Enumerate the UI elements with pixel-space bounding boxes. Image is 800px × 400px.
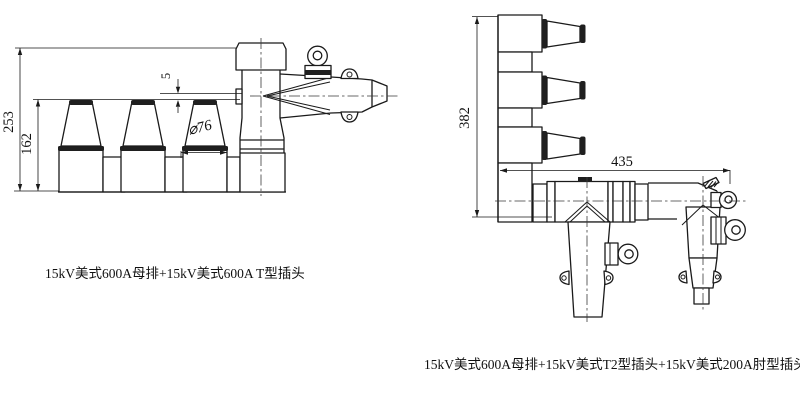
bushing-cone [547, 133, 580, 159]
bushing-flange [182, 146, 228, 151]
left-bushing-2 [120, 100, 166, 151]
tall-block-1 [59, 150, 103, 192]
tall-block-2 [121, 150, 165, 192]
dim-253-label: 253 [1, 111, 17, 133]
dim-162-label: 162 [19, 133, 35, 155]
right-bushing-2 [542, 76, 586, 106]
elbow-plug [679, 176, 745, 310]
bushing-cone [61, 104, 101, 146]
bushing-flange [542, 131, 547, 160]
bushing-cap [580, 25, 586, 44]
left-drawing: 253 162 5 ⌀76 15kV美式600A母排+15kV美式600A T型… [1, 38, 399, 281]
tall-block-3 [183, 150, 227, 192]
wide-block-3 [498, 127, 542, 163]
body-band [635, 184, 648, 220]
right-caption: 15kV美式600A母排+15kV美式T2型插头+15kV美式200A肘型插头 [424, 357, 800, 372]
elbow-stem [694, 288, 709, 304]
eye-base [711, 217, 726, 244]
body-band [613, 182, 623, 223]
t2-top-nub [578, 177, 592, 182]
elbow-eye-bolt-top [711, 192, 737, 209]
arrow-up [36, 100, 40, 107]
dim-435-label: 435 [611, 154, 633, 170]
short-block-3 [227, 157, 240, 192]
arrow-down [18, 184, 22, 191]
plug-body [568, 222, 610, 317]
eye-base [605, 243, 618, 265]
bushing-cap [580, 137, 586, 156]
lifting-eye-bolt [605, 243, 638, 265]
arrow-up [475, 17, 479, 24]
arrow-down [475, 210, 479, 217]
body-band [630, 182, 635, 223]
eye-hole [725, 196, 732, 203]
plug-ear-right [604, 271, 613, 285]
elbow-hatched-tab [703, 178, 719, 189]
arrow-up [18, 48, 22, 55]
t-plug-side-nub [236, 89, 242, 104]
bushing-cap [131, 100, 155, 105]
right-drawing: 382 435 15kV美式600A母排+15kV美式T2型插头+15kV美式2… [424, 15, 800, 372]
lifting-eye-bolt [305, 46, 331, 78]
arrow-down [176, 87, 180, 94]
bushing-cap [193, 100, 217, 105]
arm-ear-bottom [341, 112, 358, 122]
eye-hole [625, 250, 633, 258]
bushing-cap [580, 81, 586, 100]
right-bushing-3 [542, 131, 586, 160]
bushing-flange [542, 76, 547, 106]
elbow-ear-left [679, 271, 687, 283]
bushing-cone [547, 78, 580, 104]
bushing-cap [69, 100, 93, 105]
body-band [608, 182, 613, 223]
arrow-right [723, 168, 730, 172]
elbow-eye-bolt-side [711, 217, 745, 244]
bushing-cone [547, 21, 580, 47]
bushing-flange [542, 19, 547, 49]
body-band [623, 182, 630, 223]
left-bushing-1 [58, 100, 104, 151]
narrow-block-1 [498, 52, 532, 72]
bushing-cone [123, 104, 163, 146]
t-plug-base [240, 153, 285, 192]
dim-5-label: 5 [159, 73, 173, 79]
right-bushing-1 [542, 19, 586, 49]
connector-segment [547, 182, 555, 223]
arrow-up [176, 100, 180, 107]
connector-segment [533, 184, 547, 222]
arrow-down [36, 184, 40, 191]
eye-base-band [305, 70, 331, 75]
technical-drawing: 253 162 5 ⌀76 15kV美式600A母排+15kV美式600A T型… [0, 0, 800, 400]
wide-block-1 [498, 15, 542, 52]
t-plug-body [240, 70, 284, 153]
bushing-flange [120, 146, 166, 151]
drawing-canvas: 253 162 5 ⌀76 15kV美式600A母排+15kV美式600A T型… [0, 0, 800, 400]
bushing-flange [58, 146, 104, 151]
narrow-block-2 [498, 108, 532, 127]
eye-hole [313, 51, 322, 60]
dim-382-label: 382 [457, 107, 473, 129]
left-t-plug [236, 38, 399, 196]
wide-block-2 [498, 72, 542, 108]
eye-hole [732, 226, 740, 234]
narrow-block-4 [498, 163, 532, 222]
left-caption: 15kV美式600A母排+15kV美式600A T型插头 [45, 266, 305, 281]
t2-main-body [555, 182, 608, 223]
